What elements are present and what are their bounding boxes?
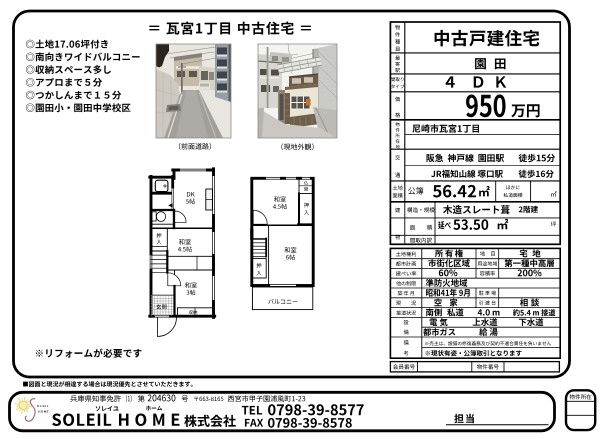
svg-text:OLEIL: OLEIL <box>37 404 49 408</box>
svg-text:HOME: HOME <box>38 410 49 414</box>
